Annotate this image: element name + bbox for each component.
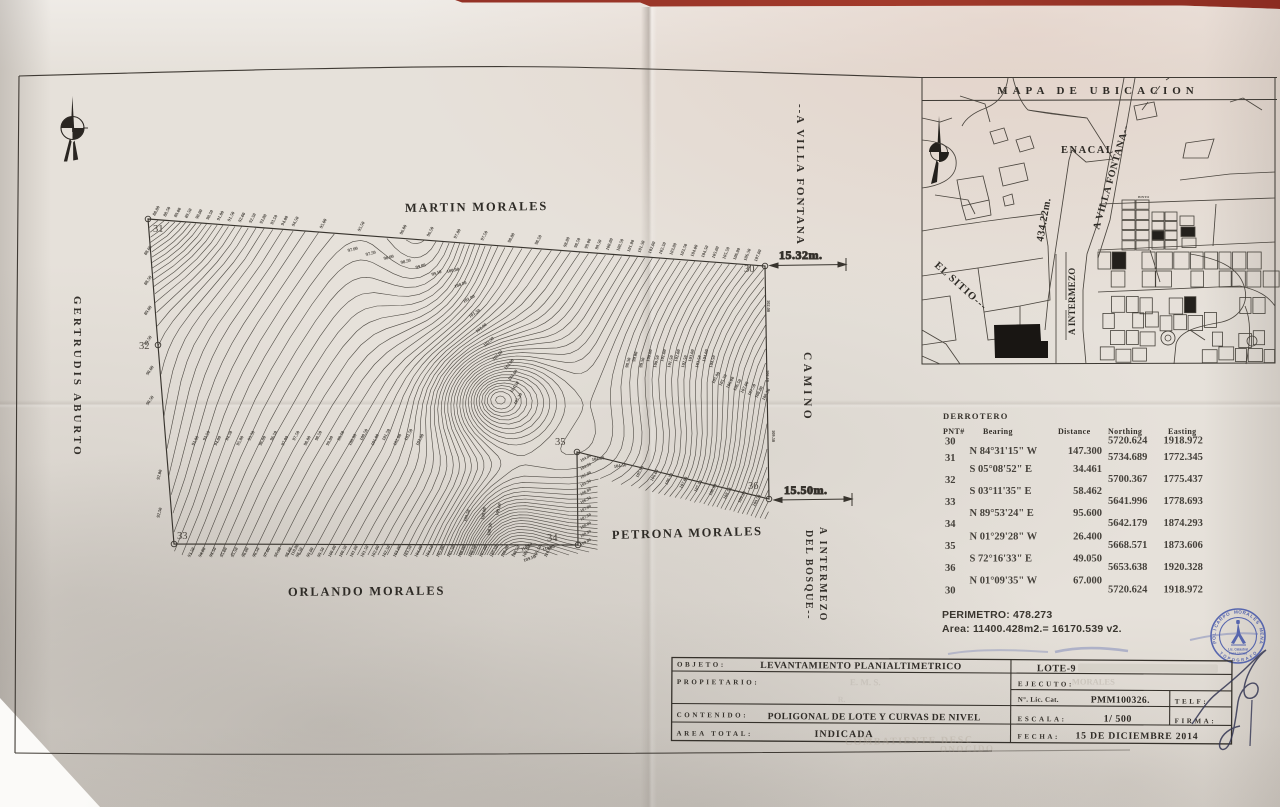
svg-text:MARTIN MORALES: MARTIN MORALES bbox=[405, 199, 548, 215]
svg-text:58.462: 58.462 bbox=[1073, 486, 1102, 497]
svg-text:5668.571: 5668.571 bbox=[1108, 540, 1147, 551]
svg-text:102.00: 102.00 bbox=[392, 432, 403, 446]
svg-text:95.00: 95.00 bbox=[235, 434, 245, 446]
svg-text:97.50: 97.50 bbox=[273, 546, 283, 558]
svg-text:95.00: 95.00 bbox=[318, 217, 328, 229]
svg-text:94.00: 94.00 bbox=[213, 434, 223, 446]
svg-text:100.00: 100.00 bbox=[605, 237, 615, 251]
svg-text:93.50: 93.50 bbox=[186, 546, 196, 558]
svg-text:95.50: 95.50 bbox=[230, 546, 240, 558]
svg-text:AL: AL bbox=[860, 732, 873, 742]
svg-text:96.00: 96.00 bbox=[398, 223, 408, 235]
svg-text:A INTERMEZO: A INTERMEZO bbox=[817, 527, 828, 623]
svg-text:92.00: 92.00 bbox=[155, 468, 163, 480]
svg-text:99.50: 99.50 bbox=[594, 238, 603, 250]
svg-text:EJECUTO:: EJECUTO: bbox=[1018, 680, 1074, 688]
svg-text:98.50: 98.50 bbox=[533, 234, 543, 246]
svg-text:TELF:: TELF: bbox=[1175, 698, 1209, 706]
svg-text:102.50: 102.50 bbox=[403, 427, 414, 441]
svg-text:106.50: 106.50 bbox=[742, 247, 752, 261]
svg-text:PETRONA MORALES: PETRONA MORALES bbox=[612, 524, 763, 542]
svg-text:N 84°31'15" W: N 84°31'15" W bbox=[970, 446, 1038, 457]
svg-text:103.00: 103.00 bbox=[668, 242, 678, 256]
svg-text:30: 30 bbox=[945, 437, 956, 448]
svg-text:90.00: 90.00 bbox=[145, 364, 155, 376]
svg-text:ONOCIDO: ONOCIDO bbox=[940, 743, 995, 754]
svg-text:99.00: 99.00 bbox=[631, 350, 639, 362]
svg-text:108.00: 108.00 bbox=[500, 544, 511, 558]
svg-text:30: 30 bbox=[945, 586, 956, 597]
svg-text:101.00: 101.00 bbox=[626, 238, 636, 252]
svg-text:BINTO: BINTO bbox=[1138, 195, 1149, 199]
svg-text:33: 33 bbox=[945, 497, 956, 508]
svg-text:N°. Lic. Cat.: N°. Lic. Cat. bbox=[1018, 696, 1059, 704]
svg-text:A: A bbox=[1258, 640, 1264, 645]
svg-text:93.50: 93.50 bbox=[269, 213, 279, 225]
svg-text:104.50: 104.50 bbox=[613, 462, 627, 469]
svg-text:88.50: 88.50 bbox=[162, 205, 172, 217]
svg-text:105.00: 105.00 bbox=[711, 245, 721, 259]
svg-text:98.50: 98.50 bbox=[400, 257, 412, 265]
svg-text:O: O bbox=[1225, 611, 1231, 617]
svg-text:98.00: 98.00 bbox=[302, 434, 312, 446]
svg-text:N 01°09'35" W: N 01°09'35" W bbox=[970, 576, 1038, 587]
svg-text:1775.437: 1775.437 bbox=[1164, 474, 1203, 485]
svg-text:97.00: 97.00 bbox=[262, 546, 272, 558]
svg-text:101.00: 101.00 bbox=[659, 348, 667, 362]
svg-text:108.50: 108.50 bbox=[510, 544, 521, 558]
svg-text:94.50: 94.50 bbox=[291, 215, 301, 227]
svg-text:102.00: 102.00 bbox=[370, 544, 381, 558]
svg-text:30: 30 bbox=[744, 264, 755, 275]
svg-text:97.00: 97.00 bbox=[347, 245, 359, 253]
svg-text:5700.367: 5700.367 bbox=[1108, 474, 1147, 485]
svg-text:E: E bbox=[1259, 632, 1264, 636]
svg-text:106.00: 106.00 bbox=[732, 246, 742, 260]
svg-text:98.50: 98.50 bbox=[314, 429, 324, 441]
svg-text:5720.624: 5720.624 bbox=[1108, 436, 1148, 447]
svg-text:98.00: 98.00 bbox=[506, 231, 516, 243]
svg-text:104.00: 104.00 bbox=[689, 243, 699, 257]
svg-text:92.50: 92.50 bbox=[155, 506, 163, 518]
svg-text:100.00: 100.00 bbox=[347, 432, 358, 446]
svg-text:107.00: 107.00 bbox=[753, 248, 763, 262]
svg-text:ENACAL: ENACAL bbox=[1061, 145, 1114, 156]
svg-text:102.00: 102.00 bbox=[766, 300, 771, 313]
svg-text:103.00: 103.00 bbox=[491, 349, 504, 362]
svg-text:93.00: 93.00 bbox=[190, 434, 200, 446]
svg-text:AREA TOTAL:: AREA TOTAL: bbox=[677, 730, 753, 738]
svg-text:PERIMETRO: 478.273: PERIMETRO: 478.273 bbox=[942, 609, 1052, 621]
svg-text:DEL BOSQUE--: DEL BOSQUE-- bbox=[803, 530, 814, 620]
svg-text:95.50: 95.50 bbox=[356, 220, 366, 232]
svg-text:34: 34 bbox=[945, 519, 956, 530]
svg-text:A VILLA FONTANA--: A VILLA FONTANA-- bbox=[1091, 124, 1131, 231]
svg-text:94.50: 94.50 bbox=[208, 546, 218, 558]
svg-text:98.50: 98.50 bbox=[573, 236, 582, 248]
svg-text:1778.693: 1778.693 bbox=[1164, 496, 1203, 507]
svg-text:5641.996: 5641.996 bbox=[1108, 496, 1147, 507]
svg-text:5720.624: 5720.624 bbox=[1108, 585, 1148, 596]
svg-text:CAMINO: CAMINO bbox=[801, 352, 813, 422]
svg-text:MAPA DE UBICACION: MAPA DE UBICACION bbox=[997, 85, 1199, 97]
svg-text:PROPIETARIO:: PROPIETARIO: bbox=[677, 678, 759, 687]
svg-text:15.32m.: 15.32m. bbox=[779, 248, 823, 262]
svg-text:100.50: 100.50 bbox=[358, 427, 369, 441]
svg-text:1918.972: 1918.972 bbox=[1164, 436, 1203, 447]
svg-text:104.00: 104.00 bbox=[507, 368, 519, 382]
svg-text:35: 35 bbox=[945, 541, 956, 552]
svg-text:90.00: 90.00 bbox=[194, 208, 204, 220]
svg-text:1/ 500: 1/ 500 bbox=[1104, 714, 1132, 725]
svg-text:95.600: 95.600 bbox=[1073, 508, 1102, 519]
svg-text:90.50: 90.50 bbox=[145, 394, 155, 406]
svg-text:A INTERMEZO: A INTERMEZO bbox=[1067, 267, 1077, 335]
svg-text:96.00: 96.00 bbox=[240, 546, 250, 558]
svg-text:91.50: 91.50 bbox=[226, 210, 236, 222]
svg-text:98.00: 98.00 bbox=[562, 236, 571, 248]
svg-text:CONTENIDO:: CONTENIDO: bbox=[677, 711, 749, 719]
svg-text:31: 31 bbox=[945, 453, 956, 464]
svg-text:100.00: 100.00 bbox=[645, 348, 653, 362]
svg-text:ORLANDO MORALES: ORLANDO MORALES bbox=[288, 584, 445, 599]
svg-text:DERROTERO: DERROTERO bbox=[943, 411, 1009, 421]
svg-text:95.50: 95.50 bbox=[246, 429, 256, 441]
svg-text:102.00: 102.00 bbox=[647, 240, 657, 254]
svg-text:101.50: 101.50 bbox=[468, 307, 482, 318]
svg-text:LOTE-9: LOTE-9 bbox=[1037, 663, 1076, 674]
svg-text:5734.689: 5734.689 bbox=[1108, 452, 1147, 463]
svg-text:104.00: 104.00 bbox=[579, 453, 592, 463]
svg-text:15.50m.: 15.50m. bbox=[784, 483, 828, 497]
svg-text:Bearing: Bearing bbox=[983, 427, 1013, 436]
svg-text:MORALES: MORALES bbox=[1072, 676, 1115, 686]
svg-text:108.00: 108.00 bbox=[480, 506, 487, 520]
svg-text:PMM-100326: PMM-100326 bbox=[1229, 652, 1247, 656]
svg-text:G: G bbox=[1236, 658, 1239, 663]
svg-text:FECHA:: FECHA: bbox=[1018, 733, 1060, 741]
svg-text:67.000: 67.000 bbox=[1073, 576, 1102, 587]
svg-text:101.50: 101.50 bbox=[381, 427, 392, 441]
svg-text:103.00: 103.00 bbox=[414, 432, 425, 446]
svg-text:1874.293: 1874.293 bbox=[1164, 518, 1203, 529]
svg-text:15 DE DICIEMBRE 2014: 15 DE DICIEMBRE 2014 bbox=[1075, 730, 1198, 742]
svg-text:89.00: 89.00 bbox=[143, 304, 153, 316]
svg-text:103.50: 103.50 bbox=[679, 242, 689, 256]
svg-text:96.00: 96.00 bbox=[258, 434, 268, 446]
svg-text:104.50: 104.50 bbox=[700, 244, 710, 258]
svg-text:34.461: 34.461 bbox=[1073, 464, 1102, 475]
svg-text:102.00: 102.00 bbox=[475, 322, 489, 334]
svg-text:88.00: 88.00 bbox=[151, 204, 161, 216]
svg-text:100.00: 100.00 bbox=[446, 266, 460, 274]
svg-text:95.00: 95.00 bbox=[219, 546, 229, 558]
svg-text:93.00: 93.00 bbox=[258, 213, 268, 225]
svg-text:434.22m.: 434.22m. bbox=[1035, 197, 1054, 242]
svg-text:PMM100326.: PMM100326. bbox=[1091, 695, 1150, 706]
svg-text:99.00: 99.00 bbox=[325, 434, 335, 446]
svg-text:1873.606: 1873.606 bbox=[1164, 540, 1203, 551]
svg-text:92.50: 92.50 bbox=[248, 212, 258, 224]
svg-text:5642.179: 5642.179 bbox=[1108, 518, 1147, 529]
svg-text:96.50: 96.50 bbox=[425, 225, 435, 237]
svg-text:105.20: 105.20 bbox=[513, 391, 524, 405]
svg-text:1920.328: 1920.328 bbox=[1164, 562, 1203, 573]
svg-text:89.50: 89.50 bbox=[184, 207, 194, 219]
svg-text:99.00: 99.00 bbox=[415, 262, 427, 270]
svg-text:1772.345: 1772.345 bbox=[1164, 452, 1203, 463]
svg-text:105.50: 105.50 bbox=[721, 246, 731, 260]
svg-text:26.400: 26.400 bbox=[1073, 532, 1102, 543]
svg-text:ESCALA:: ESCALA: bbox=[1018, 715, 1067, 723]
svg-text:89.50: 89.50 bbox=[143, 334, 153, 346]
svg-text:147.300: 147.300 bbox=[1068, 446, 1102, 457]
svg-text:32: 32 bbox=[945, 475, 956, 486]
svg-text:90.50: 90.50 bbox=[205, 208, 215, 220]
svg-text:1918.972: 1918.972 bbox=[1164, 585, 1203, 596]
svg-text:GERTRUDIS ABURTO: GERTRUDIS ABURTO bbox=[71, 296, 83, 458]
svg-text:R: R bbox=[1241, 657, 1245, 662]
svg-text:R.: R. bbox=[838, 695, 846, 704]
svg-text:36: 36 bbox=[945, 563, 956, 574]
svg-text:POLIGONAL DE LOTE Y CURVAS DE: POLIGONAL DE LOTE Y CURVAS DE NIVEL bbox=[768, 711, 981, 723]
svg-text:96.50: 96.50 bbox=[251, 546, 261, 558]
svg-text:88.00: 88.00 bbox=[143, 244, 153, 256]
svg-text:99.00: 99.00 bbox=[583, 237, 592, 249]
svg-text:106.50: 106.50 bbox=[765, 370, 770, 383]
svg-text:S 05°08'52" E: S 05°08'52" E bbox=[970, 464, 1033, 475]
svg-text:S 72°16'33" E: S 72°16'33" E bbox=[970, 554, 1033, 565]
svg-text:104.00: 104.00 bbox=[591, 455, 605, 462]
svg-text:--A VILLA FONTANA: --A VILLA FONTANA bbox=[794, 104, 806, 246]
svg-text:89.00: 89.00 bbox=[173, 206, 183, 218]
svg-text:99.50: 99.50 bbox=[638, 356, 646, 368]
svg-text:94.00: 94.00 bbox=[197, 546, 207, 558]
svg-text:99.50: 99.50 bbox=[316, 546, 326, 558]
svg-text:93.50: 93.50 bbox=[202, 429, 212, 441]
svg-text:Area: 11400.428m2.= 16170.539: Area: 11400.428m2.= 16170.539 v2. bbox=[942, 623, 1122, 635]
svg-text:91.00: 91.00 bbox=[216, 209, 226, 221]
svg-text:101.00: 101.00 bbox=[348, 544, 359, 558]
svg-text:97.50: 97.50 bbox=[365, 249, 377, 257]
svg-text:92.00: 92.00 bbox=[237, 211, 247, 223]
svg-text:100.50: 100.50 bbox=[615, 238, 625, 252]
svg-text:104.50: 104.50 bbox=[424, 544, 435, 558]
svg-text:N 89°53'24" E: N 89°53'24" E bbox=[970, 508, 1034, 519]
svg-text:N 01°29'28" W: N 01°29'28" W bbox=[970, 532, 1038, 543]
svg-text:103.50: 103.50 bbox=[402, 544, 413, 558]
svg-text:94.00: 94.00 bbox=[280, 214, 290, 226]
svg-text:101.00: 101.00 bbox=[370, 432, 381, 446]
svg-text:109.50: 109.50 bbox=[771, 430, 776, 443]
svg-text:106.50: 106.50 bbox=[467, 544, 478, 558]
svg-text:PNT#: PNT# bbox=[943, 427, 965, 436]
svg-text:35: 35 bbox=[555, 437, 566, 448]
svg-text:E. M. S.: E. M. S. bbox=[850, 677, 881, 687]
svg-text:5653.638: 5653.638 bbox=[1108, 562, 1147, 573]
svg-text:LEVANTAMIENTO PLANIALTIMETRICO: LEVANTAMIENTO PLANIALTIMETRICO bbox=[760, 660, 962, 672]
svg-text:101.50: 101.50 bbox=[636, 239, 646, 253]
svg-text:S 03°11'35" E: S 03°11'35" E bbox=[970, 486, 1032, 497]
svg-text:OBJETO:: OBJETO: bbox=[677, 661, 726, 669]
svg-text:49.050: 49.050 bbox=[1073, 554, 1102, 565]
svg-text:94.50: 94.50 bbox=[224, 429, 234, 441]
svg-text:88.50: 88.50 bbox=[143, 274, 153, 286]
svg-text:101.50: 101.50 bbox=[359, 544, 370, 558]
svg-text:96.50: 96.50 bbox=[269, 429, 279, 441]
svg-text:97.00: 97.00 bbox=[452, 227, 462, 239]
svg-text:Distance: Distance bbox=[1058, 427, 1091, 436]
svg-text:100.50: 100.50 bbox=[338, 544, 349, 558]
svg-text:99.50: 99.50 bbox=[336, 429, 346, 441]
svg-text:104.00: 104.00 bbox=[701, 348, 709, 362]
svg-text:97.50: 97.50 bbox=[479, 229, 489, 241]
svg-text:102.50: 102.50 bbox=[658, 241, 668, 255]
